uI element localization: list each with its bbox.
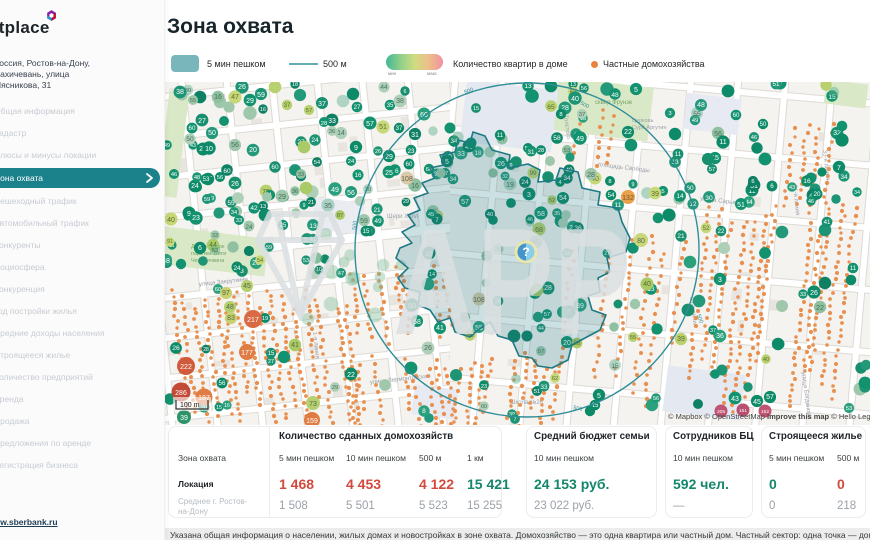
svg-text:22: 22 [816, 305, 824, 312]
svg-text:40: 40 [763, 357, 769, 363]
svg-text:22: 22 [718, 228, 725, 235]
svg-text:33: 33 [328, 118, 336, 125]
svg-text:8: 8 [608, 179, 611, 185]
svg-text:23: 23 [408, 148, 415, 155]
svg-text:73: 73 [309, 401, 317, 408]
svg-text:40: 40 [167, 217, 175, 224]
svg-text:51: 51 [773, 82, 780, 88]
svg-text:37: 37 [396, 126, 403, 132]
svg-text:58: 58 [553, 135, 561, 142]
svg-text:53: 53 [212, 248, 219, 254]
svg-text:11: 11 [497, 133, 504, 139]
svg-text:44: 44 [380, 84, 388, 91]
svg-text:37: 37 [579, 112, 586, 118]
svg-text:9: 9 [632, 182, 635, 188]
svg-text:60: 60 [481, 404, 487, 410]
svg-text:46: 46 [808, 199, 814, 205]
svg-text:108: 108 [401, 176, 413, 183]
svg-text:9: 9 [303, 203, 306, 209]
svg-text:35: 35 [387, 102, 394, 109]
svg-text:7: 7 [837, 165, 841, 172]
svg-text:22: 22 [347, 372, 355, 379]
svg-text:33: 33 [800, 292, 806, 298]
svg-text:26: 26 [231, 181, 239, 188]
svg-text:56: 56 [231, 142, 239, 149]
svg-text:16: 16 [214, 94, 222, 101]
svg-text:6: 6 [770, 183, 774, 190]
svg-text:13: 13 [309, 223, 317, 230]
svg-text:35: 35 [324, 203, 332, 210]
svg-text:30: 30 [705, 195, 713, 202]
svg-text:18: 18 [292, 82, 298, 88]
svg-text:Черевичкина: Черевичкина [191, 258, 225, 264]
svg-text:26: 26 [810, 290, 818, 297]
svg-text:29: 29 [278, 194, 286, 201]
svg-text:22: 22 [624, 129, 632, 136]
svg-text:56: 56 [219, 380, 226, 387]
svg-text:54: 54 [314, 160, 320, 166]
svg-text:286: 286 [175, 390, 187, 397]
svg-text:13: 13 [524, 83, 532, 90]
svg-text:51: 51 [534, 389, 540, 395]
svg-text:34: 34 [854, 190, 860, 196]
svg-text:57: 57 [766, 394, 774, 401]
svg-text:36: 36 [292, 189, 298, 195]
svg-text:31: 31 [528, 149, 535, 156]
svg-text:24: 24 [233, 265, 241, 272]
svg-text:48: 48 [226, 304, 234, 311]
svg-text:?: ? [522, 245, 529, 259]
svg-text:97: 97 [222, 290, 230, 297]
svg-text:100 m: 100 m [180, 402, 200, 409]
svg-text:60: 60 [271, 164, 279, 171]
svg-text:26: 26 [172, 345, 180, 352]
svg-text:48: 48 [697, 102, 705, 109]
svg-text:Сурб Аргутин: Сурб Аргутин [632, 125, 667, 131]
svg-text:28: 28 [587, 172, 595, 179]
svg-text:20: 20 [249, 147, 257, 154]
svg-text:16: 16 [260, 107, 266, 113]
svg-text:16: 16 [354, 172, 362, 179]
svg-text:11: 11 [719, 139, 726, 146]
svg-text:48: 48 [165, 258, 170, 265]
svg-text:21: 21 [308, 200, 314, 206]
svg-text:27: 27 [268, 359, 274, 365]
svg-text:11: 11 [675, 151, 682, 158]
svg-text:48: 48 [611, 92, 619, 99]
svg-text:222: 222 [180, 364, 192, 371]
svg-text:62: 62 [552, 376, 558, 382]
svg-text:37: 37 [284, 103, 291, 109]
svg-text:11: 11 [850, 265, 857, 272]
svg-text:60: 60 [406, 161, 413, 168]
svg-text:20: 20 [813, 191, 821, 198]
svg-text:21: 21 [677, 233, 685, 240]
svg-text:14: 14 [676, 193, 684, 200]
svg-text:31: 31 [411, 132, 419, 139]
svg-text:21: 21 [373, 207, 381, 214]
svg-text:50: 50 [208, 130, 216, 137]
svg-text:16: 16 [411, 183, 419, 190]
svg-text:39: 39 [677, 336, 685, 343]
svg-text:36: 36 [716, 333, 724, 340]
svg-text:10: 10 [205, 146, 213, 153]
svg-text:217: 217 [247, 317, 259, 324]
svg-text:46: 46 [751, 135, 757, 141]
svg-text:40: 40 [571, 96, 579, 103]
svg-text:43: 43 [789, 185, 795, 191]
svg-text:24: 24 [246, 224, 253, 231]
svg-text:26: 26 [375, 149, 381, 155]
svg-text:177: 177 [241, 350, 253, 357]
svg-text:24: 24 [311, 137, 319, 144]
svg-text:57: 57 [306, 108, 312, 114]
svg-text:54: 54 [257, 258, 263, 264]
svg-text:16: 16 [224, 403, 230, 409]
svg-text:33: 33 [212, 233, 218, 239]
svg-text:56: 56 [653, 396, 659, 402]
svg-text:83: 83 [227, 315, 235, 322]
svg-text:55: 55 [190, 98, 196, 104]
svg-text:59: 59 [204, 197, 210, 203]
svg-text:49: 49 [576, 136, 584, 143]
svg-text:47: 47 [231, 94, 239, 101]
svg-text:56: 56 [217, 175, 223, 181]
svg-text:27: 27 [198, 118, 206, 125]
svg-text:26: 26 [238, 84, 246, 91]
svg-text:16: 16 [803, 178, 811, 185]
svg-text:60: 60 [223, 168, 231, 175]
svg-text:87: 87 [337, 213, 343, 219]
svg-text:50: 50 [186, 136, 194, 143]
svg-text:14: 14 [337, 130, 345, 137]
svg-text:39: 39 [180, 415, 188, 422]
svg-text:65: 65 [547, 104, 555, 111]
svg-text:39: 39 [651, 191, 659, 198]
svg-text:49: 49 [692, 118, 699, 124]
svg-text:50: 50 [760, 122, 767, 128]
svg-text:49: 49 [331, 187, 339, 194]
svg-text:42: 42 [250, 205, 258, 212]
svg-text:159: 159 [306, 418, 318, 425]
svg-text:АРР: АРР [393, 197, 631, 367]
svg-text:91: 91 [167, 239, 173, 245]
svg-text:60: 60 [189, 125, 196, 132]
svg-text:45: 45 [243, 283, 251, 290]
svg-text:5: 5 [661, 189, 664, 195]
svg-text:28: 28 [203, 347, 209, 353]
svg-text:51: 51 [379, 124, 387, 131]
svg-text:57: 57 [709, 167, 715, 173]
svg-text:38: 38 [396, 98, 404, 105]
svg-text:Школа №26: Школа №26 [510, 399, 544, 406]
svg-text:15: 15 [473, 106, 479, 112]
svg-text:43: 43 [731, 396, 739, 403]
svg-text:15: 15 [363, 228, 370, 235]
svg-text:60: 60 [733, 112, 740, 119]
svg-text:55: 55 [693, 111, 701, 118]
svg-text:8: 8 [422, 408, 426, 415]
svg-text:23: 23 [481, 384, 487, 390]
svg-text:15: 15 [216, 405, 222, 411]
svg-text:37: 37 [318, 101, 326, 108]
svg-text:9: 9 [354, 145, 358, 152]
svg-text:38: 38 [176, 89, 184, 96]
svg-text:56: 56 [347, 190, 355, 197]
svg-text:29: 29 [332, 385, 338, 391]
svg-text:3: 3 [718, 277, 722, 284]
svg-text:6: 6 [751, 179, 754, 185]
svg-text:500: 500 [352, 220, 359, 230]
svg-text:40: 40 [643, 281, 651, 288]
svg-text:59: 59 [257, 92, 265, 99]
svg-text:© Mapbox © OpenStreetMap Impro: © Mapbox © OpenStreetMap Improve this ma… [668, 412, 870, 421]
svg-text:5: 5 [634, 87, 638, 94]
svg-text:33: 33 [541, 384, 548, 391]
svg-text:53: 53 [203, 176, 210, 183]
svg-text:59: 59 [360, 218, 368, 225]
svg-text:6: 6 [198, 245, 202, 252]
svg-text:24: 24 [348, 159, 355, 165]
svg-text:41: 41 [291, 342, 299, 349]
svg-text:29: 29 [246, 98, 254, 105]
svg-text:33: 33 [298, 172, 304, 178]
svg-text:49: 49 [374, 218, 382, 225]
svg-text:28: 28 [538, 148, 544, 154]
svg-text:33: 33 [236, 218, 242, 224]
svg-text:45: 45 [753, 399, 761, 406]
svg-text:25: 25 [385, 170, 393, 177]
svg-text:5: 5 [597, 393, 601, 400]
svg-text:46: 46 [171, 172, 177, 178]
svg-text:41: 41 [824, 219, 831, 226]
svg-text:53: 53 [303, 258, 309, 264]
svg-text:23: 23 [192, 215, 200, 222]
svg-text:36: 36 [329, 129, 335, 135]
svg-text:19: 19 [262, 316, 268, 322]
svg-text:52: 52 [703, 225, 710, 232]
svg-text:34: 34 [840, 174, 848, 181]
svg-text:80: 80 [637, 238, 645, 245]
svg-text:34: 34 [231, 210, 237, 216]
svg-text:24: 24 [191, 183, 199, 190]
svg-text:57: 57 [366, 121, 374, 128]
svg-text:49: 49 [165, 143, 170, 149]
svg-text:15: 15 [268, 351, 275, 357]
svg-text:6: 6 [404, 89, 407, 95]
svg-text:51: 51 [737, 202, 745, 209]
svg-text:27: 27 [354, 104, 361, 111]
svg-text:48: 48 [194, 175, 200, 181]
svg-text:28: 28 [321, 121, 327, 127]
svg-text:7: 7 [513, 417, 516, 423]
